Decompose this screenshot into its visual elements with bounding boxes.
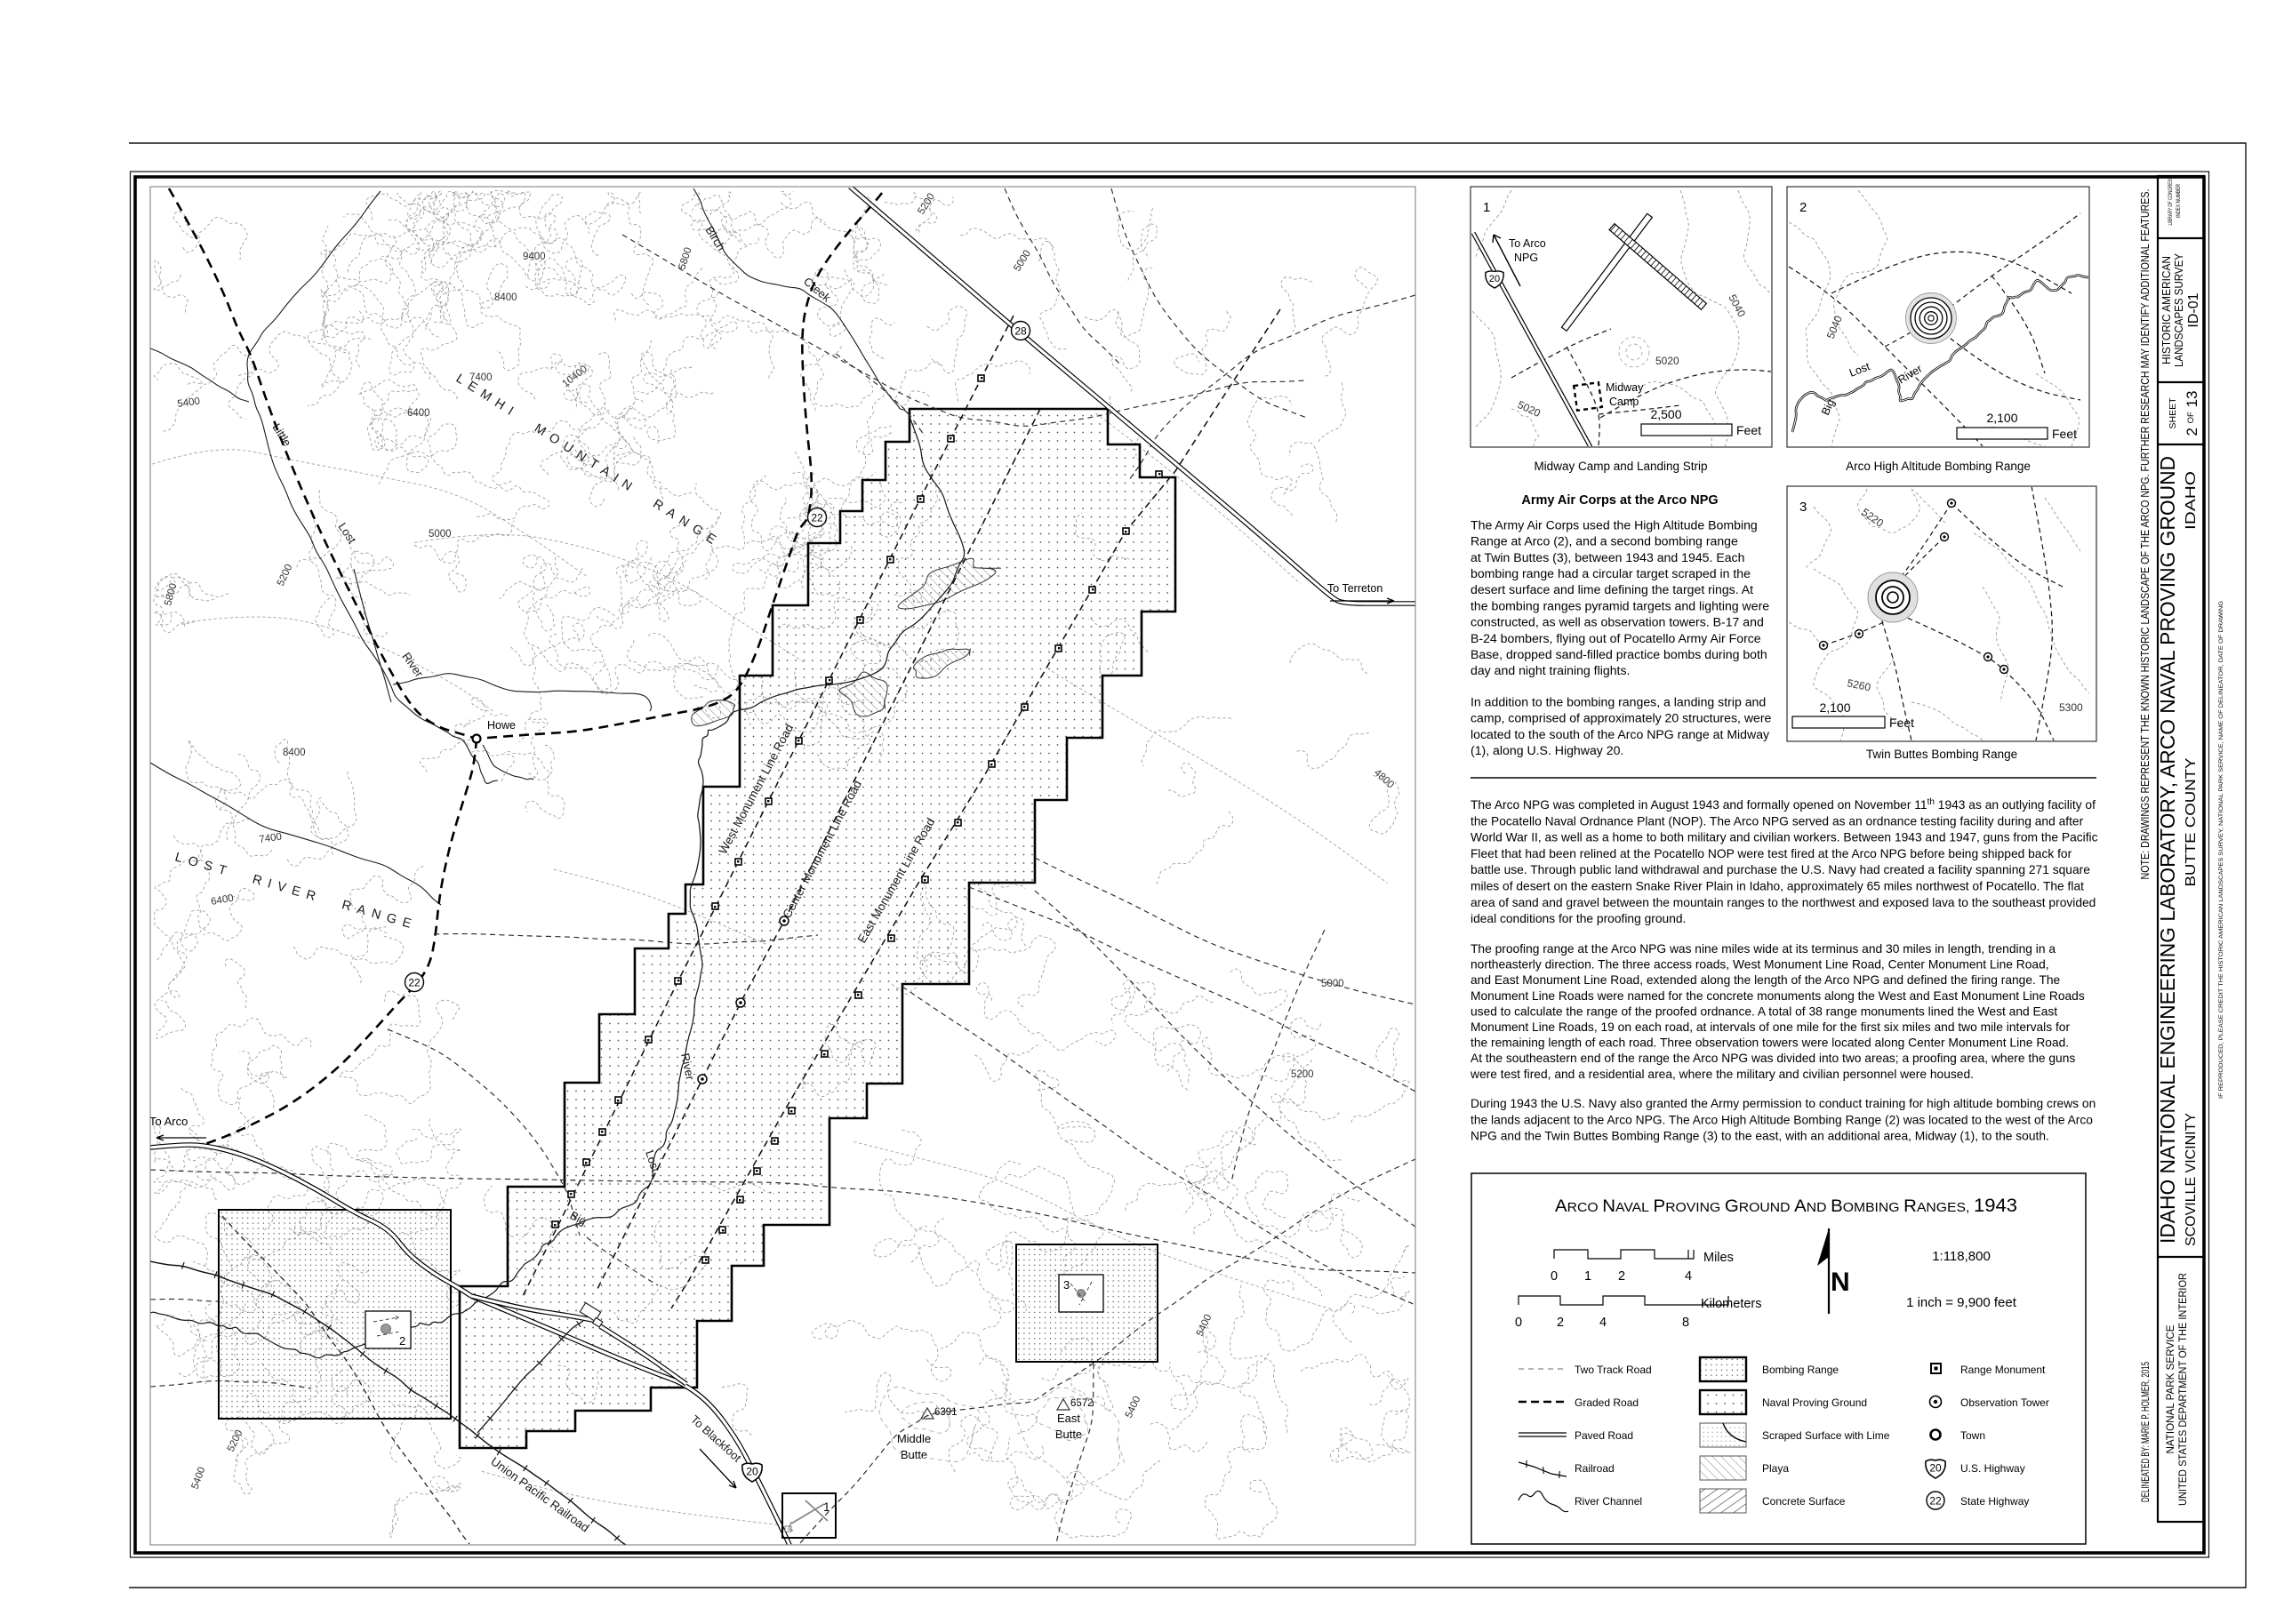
svg-text:5400: 5400 — [177, 396, 201, 410]
svg-text:the lands adjacent to the Arco: the lands adjacent to the Arco NPG. The … — [1471, 1113, 2093, 1126]
svg-text:6400: 6400 — [407, 408, 430, 419]
svg-text:22: 22 — [408, 977, 421, 989]
svg-text:IDAHO NATIONAL ENGINEERING LAB: IDAHO NATIONAL ENGINEERING LABORATORY, A… — [2156, 456, 2179, 1244]
svg-text:World War II, as well as a hom: World War II, as well as a home to both … — [1471, 831, 2098, 844]
svg-text:UNITED STATES DEPARTMENT OF TH: UNITED STATES DEPARTMENT OF THE INTERIOR — [2178, 1273, 2189, 1506]
svg-text:2,100: 2,100 — [1986, 411, 2017, 425]
svg-text:Base, dropped sand-filled prac: Base, dropped sand-filled practice bombs… — [1471, 647, 1767, 661]
svg-text:Paved Road: Paved Road — [1575, 1429, 1633, 1442]
svg-text:SCOVILLE VICINITY: SCOVILLE VICINITY — [2184, 1113, 2199, 1246]
svg-text:2,100: 2,100 — [1819, 700, 1850, 715]
svg-text:5000: 5000 — [1321, 979, 1344, 989]
svg-text:Butte: Butte — [901, 1448, 927, 1461]
svg-text:located to the south of the Ar: located to the south of the Arco NPG ran… — [1471, 727, 1770, 741]
svg-text:7400: 7400 — [469, 372, 493, 383]
svg-text:1: 1 — [823, 1500, 830, 1514]
svg-text:Union Pacific Railroad: Union Pacific Railroad — [488, 1454, 591, 1534]
svg-text:area of sand and gravel betwee: area of sand and gravel between the moun… — [1471, 896, 2096, 909]
svg-text:Scraped Surface with Lime: Scraped Surface with Lime — [1762, 1429, 1890, 1442]
svg-text:During 1943 the U.S. Navy also: During 1943 the U.S. Navy also granted t… — [1471, 1097, 2096, 1110]
svg-text:At the southeastern end of the: At the southeastern end of the range the… — [1471, 1052, 2075, 1065]
svg-text:20: 20 — [1489, 274, 1500, 284]
svg-text:the bombing ranges pyramid tar: the bombing ranges pyramid targets and l… — [1471, 598, 1769, 612]
svg-text:8: 8 — [1682, 1316, 1689, 1330]
svg-text:5200: 5200 — [1291, 1069, 1314, 1080]
svg-text:East: East — [1057, 1412, 1080, 1425]
svg-text:28: 28 — [1014, 325, 1027, 338]
svg-text:The Army Air Corps used the Hi: The Army Air Corps used the High Altitud… — [1471, 517, 1758, 532]
svg-text:Army Air Corps at the Arco NPG: Army Air Corps at the Arco NPG — [1521, 493, 1718, 508]
svg-text:NOTE: DRAWINGS REPRESENT THE K: NOTE: DRAWINGS REPRESENT THE KNOWN HISTO… — [2139, 189, 2152, 880]
svg-text:ARCO NAVAL PROVING GROUND AND: ARCO NAVAL PROVING GROUND AND BOMBING RA… — [1555, 1196, 2017, 1216]
svg-text:INDEX NUMBER: INDEX NUMBER — [2176, 184, 2182, 218]
svg-text:desert surface and lime defini: desert surface and lime defining the tar… — [1471, 582, 1753, 596]
svg-text:the remaining length of each r: the remaining length of each road. Three… — [1471, 1036, 2069, 1050]
svg-text:1: 1 — [1483, 200, 1490, 215]
svg-text:To Arco: To Arco — [149, 1115, 188, 1128]
svg-text:Midway Camp and Landing Strip: Midway Camp and Landing Strip — [1534, 460, 1707, 473]
svg-text:day and night training flights: day and night training flights. — [1471, 663, 1630, 677]
svg-text:6391: 6391 — [934, 1407, 958, 1418]
svg-text:Twin Buttes Bombing Range: Twin Buttes Bombing Range — [1866, 748, 2017, 761]
svg-text:Two Track Road: Two Track Road — [1575, 1364, 1652, 1376]
svg-text:9400: 9400 — [523, 252, 546, 262]
svg-text:Howe: Howe — [487, 719, 516, 732]
svg-text:Feet: Feet — [2052, 427, 2077, 441]
svg-text:20: 20 — [1929, 1462, 1942, 1475]
svg-text:5200: 5200 — [276, 563, 295, 588]
svg-text:LIBRARY OF CONGRESS: LIBRARY OF CONGRESS — [2168, 176, 2174, 225]
svg-text:4: 4 — [1685, 1269, 1692, 1284]
svg-text:Monument Line Roads, 19 on eac: Monument Line Roads, 19 on each road, at… — [1471, 1020, 2070, 1034]
svg-text:4800: 4800 — [1372, 767, 1396, 790]
svg-text:To Arco: To Arco — [1509, 237, 1546, 250]
svg-text:5000: 5000 — [429, 529, 452, 540]
svg-text:NPG: NPG — [1514, 252, 1538, 264]
svg-text:Birch: Birch — [702, 224, 727, 253]
svg-text:Midway: Midway — [1606, 381, 1644, 394]
svg-text:Naval Proving Ground: Naval Proving Ground — [1762, 1396, 1867, 1409]
svg-text:0: 0 — [1515, 1316, 1522, 1330]
svg-text:Arco High Altitude Bombing Ran: Arco High Altitude Bombing Range — [1846, 460, 2031, 473]
svg-text:The proofing range at the Arco: The proofing range at the Arco NPG was n… — [1471, 942, 2056, 956]
svg-text:5200: 5200 — [916, 192, 937, 217]
svg-text:NATIONAL PARK SERVICE: NATIONAL PARK SERVICE — [2166, 1324, 2176, 1453]
svg-text:HISTORIC AMERICAN: HISTORIC AMERICAN — [2160, 256, 2173, 364]
svg-text:22: 22 — [811, 512, 823, 524]
svg-text:Range at Arco (2), and a secon: Range at Arco (2), and a second bombing … — [1471, 534, 1738, 548]
svg-text:Butte: Butte — [1055, 1428, 1082, 1441]
svg-text:Concrete Surface: Concrete Surface — [1762, 1495, 1846, 1508]
svg-text:Monument Line Roads were named: Monument Line Roads were named for the c… — [1471, 989, 2085, 1003]
svg-text:Observation Tower: Observation Tower — [1960, 1396, 2049, 1409]
svg-text:5400: 5400 — [190, 1466, 208, 1491]
svg-text:N: N — [1831, 1268, 1850, 1297]
svg-text:5020: 5020 — [1655, 355, 1679, 367]
svg-text:2: 2 — [1557, 1316, 1564, 1330]
svg-text:Miles: Miles — [1703, 1251, 1734, 1265]
svg-text:1 inch = 9,900 feet: 1 inch = 9,900 feet — [1906, 1295, 2017, 1310]
svg-text:River: River — [400, 650, 427, 680]
svg-text:4: 4 — [1599, 1316, 1607, 1330]
svg-text:8400: 8400 — [283, 748, 306, 758]
svg-text:2,500: 2,500 — [1650, 407, 1681, 421]
svg-text:The Arco NPG was completed in: The Arco NPG was completed in August 194… — [1471, 797, 2096, 812]
svg-text:and East Monument Line Road, e: and East Monument Line Road, extended al… — [1471, 973, 2061, 987]
svg-text:Range Monument: Range Monument — [1960, 1364, 2046, 1376]
svg-text:Lost: Lost — [336, 520, 359, 546]
svg-text:U.S. Highway: U.S. Highway — [1960, 1462, 2025, 1475]
svg-text:ideal conditions for the proof: ideal conditions for the proofing ground… — [1471, 912, 1686, 925]
svg-text:the Pocatello Naval Ordnance P: the Pocatello Naval Ordnance Plant (NOP)… — [1471, 814, 2084, 828]
svg-text:To Terreton: To Terreton — [1327, 582, 1382, 595]
svg-text:Feet: Feet — [1889, 716, 1914, 730]
svg-text:22: 22 — [1929, 1495, 1942, 1508]
svg-text:used to calculate the range of: used to calculate the range of the proof… — [1471, 1004, 2057, 1018]
svg-text:3: 3 — [1799, 500, 1807, 515]
svg-text:7400: 7400 — [259, 832, 283, 845]
svg-text:Playa: Playa — [1762, 1462, 1789, 1475]
svg-text:In addition to the bombing ran: In addition to the bombing ranges, a lan… — [1471, 695, 1766, 709]
svg-text:camp, comprised of approximate: camp, comprised of approximately 20 stru… — [1471, 711, 1772, 725]
svg-text:1: 1 — [1584, 1269, 1591, 1284]
svg-text:B-24 bombers, flying out of Po: B-24 bombers, flying out of Pocatello Ar… — [1471, 631, 1761, 645]
svg-text:Kilometers: Kilometers — [1701, 1297, 1762, 1311]
svg-text:5800: 5800 — [677, 246, 693, 271]
svg-text:ID-01: ID-01 — [2186, 292, 2201, 327]
svg-text:constructed, as well as observ: constructed, as well as observation towe… — [1471, 615, 1764, 629]
svg-text:at Twin Buttes (3), between 19: at Twin Buttes (3), between 1943 and 194… — [1471, 550, 1744, 564]
svg-text:DELINEATED BY: MARIE P. HOLME: DELINEATED BY: MARIE P. HOLMER, 2015 — [2141, 1362, 2152, 1502]
svg-text:State Highway: State Highway — [1960, 1495, 2029, 1508]
svg-text:bombing range had a circular t: bombing range had a circular target scra… — [1471, 566, 1751, 580]
svg-text:0: 0 — [1551, 1269, 1558, 1284]
svg-text:miles of desert on the eastern: miles of desert on the eastern Snake Riv… — [1471, 880, 2084, 893]
svg-text:5400: 5400 — [1195, 1313, 1214, 1338]
svg-text:were test fired, and a residen: were test fired, and a residential area,… — [1470, 1068, 1974, 1081]
svg-text:River Channel: River Channel — [1575, 1495, 1642, 1508]
svg-text:northeasterly direction. The t: northeasterly direction. The three acces… — [1471, 958, 2049, 972]
svg-text:2: 2 — [1618, 1269, 1625, 1284]
svg-text:2 OF 13: 2 OF 13 — [2184, 390, 2200, 436]
svg-text:20: 20 — [746, 1466, 758, 1478]
svg-text:(1), along U.S. Highway 20.: (1), along U.S. Highway 20. — [1471, 743, 1623, 757]
svg-text:5000: 5000 — [1012, 249, 1033, 274]
svg-text:Town: Town — [1960, 1429, 1985, 1442]
svg-text:5800: 5800 — [163, 582, 179, 607]
svg-text:2: 2 — [399, 1334, 405, 1348]
svg-text:3: 3 — [1063, 1278, 1070, 1292]
svg-text:Middle: Middle — [897, 1432, 931, 1445]
svg-text:Little: Little — [269, 421, 293, 449]
svg-text:1:118,800: 1:118,800 — [1932, 1249, 1991, 1264]
svg-text:2: 2 — [1799, 200, 1807, 215]
svg-text:Fleet that had been relined at: Fleet that had been relined at the Pocat… — [1471, 847, 2072, 860]
svg-text:LANDSCAPES SURVEY: LANDSCAPES SURVEY — [2173, 252, 2185, 367]
svg-text:8400: 8400 — [494, 292, 517, 303]
svg-text:NPG and the Twin Buttes Bombin: NPG and the Twin Buttes Bombing Range (3… — [1471, 1130, 2049, 1143]
svg-text:BUTTE COUNTY: BUTTE COUNTY — [2184, 757, 2199, 886]
svg-text:SHEET: SHEET — [2168, 397, 2178, 429]
svg-text:IDAHO: IDAHO — [2184, 471, 2199, 530]
svg-text:Graded Road: Graded Road — [1575, 1396, 1639, 1409]
svg-text:battle use. Through public lan: battle use. Through public land withdraw… — [1471, 863, 2090, 876]
svg-text:IF REPRODUCED, PLEASE CREDIT T: IF REPRODUCED, PLEASE CREDIT THE HISTORI… — [2218, 601, 2224, 1099]
svg-text:Feet: Feet — [1736, 423, 1761, 437]
svg-text:5300: 5300 — [2059, 701, 2083, 714]
svg-text:LEMHI MOUNTAIN RANGE: LEMHI MOUNTAIN RANGE — [453, 372, 724, 551]
svg-text:Railroad: Railroad — [1575, 1462, 1615, 1475]
svg-text:LOST RIVER RANGE: LOST RIVER RANGE — [173, 850, 419, 932]
svg-text:Bombing Range: Bombing Range — [1762, 1364, 1839, 1376]
svg-text:5400: 5400 — [1124, 1395, 1143, 1420]
svg-text:Camp: Camp — [1609, 396, 1639, 408]
